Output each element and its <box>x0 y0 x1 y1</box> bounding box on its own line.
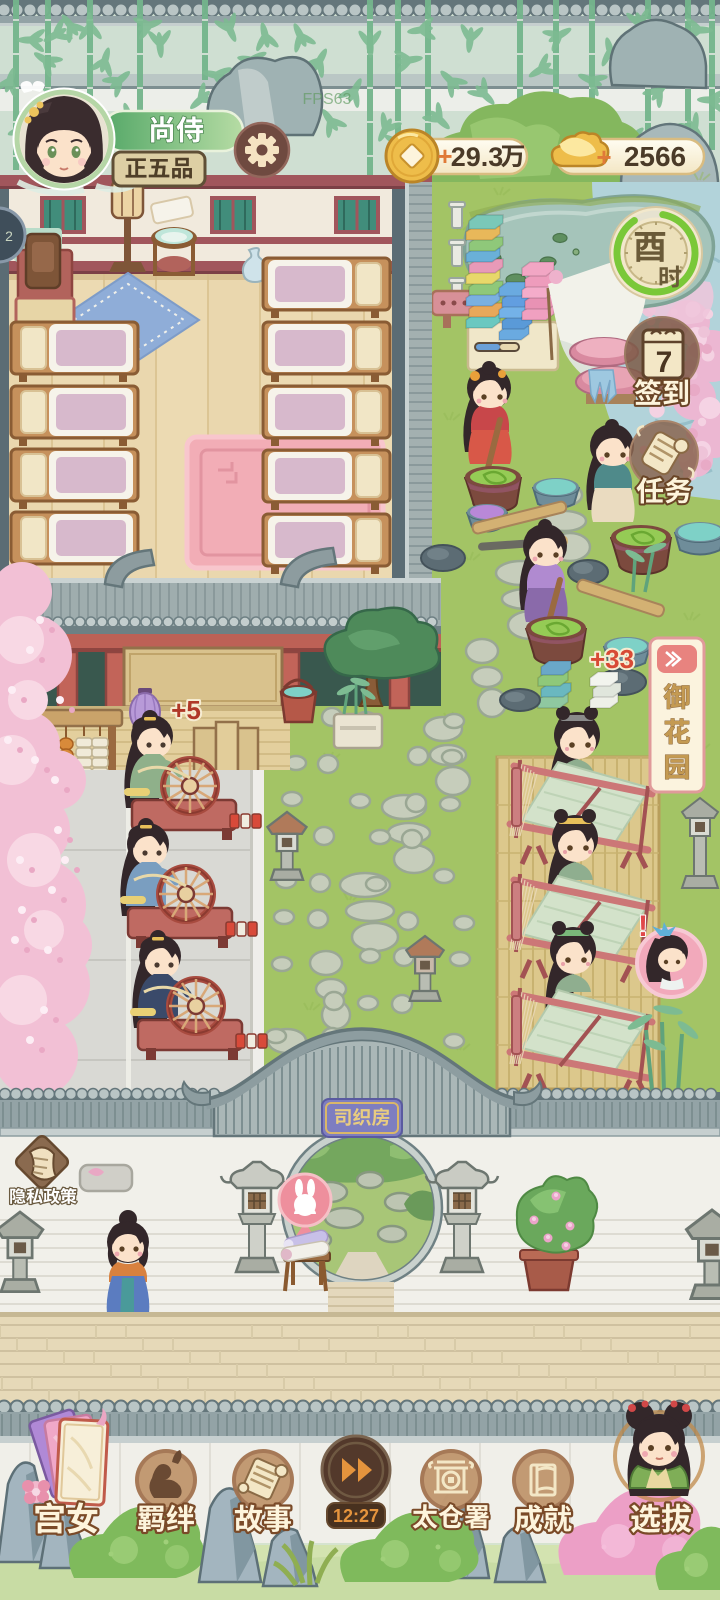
svg-text:!: ! <box>638 910 648 943</box>
svg-text:+33: +33 <box>590 644 634 674</box>
svg-text:FPS63: FPS63 <box>303 91 352 108</box>
svg-text:+5: +5 <box>171 695 201 725</box>
svg-text:29.3: 29.3 <box>451 142 504 172</box>
svg-text:12:27: 12:27 <box>333 1506 379 1526</box>
svg-text:+: + <box>596 142 611 172</box>
svg-text:7: 7 <box>656 346 673 379</box>
svg-text:2: 2 <box>5 228 13 244</box>
svg-text:2566: 2566 <box>624 141 686 172</box>
